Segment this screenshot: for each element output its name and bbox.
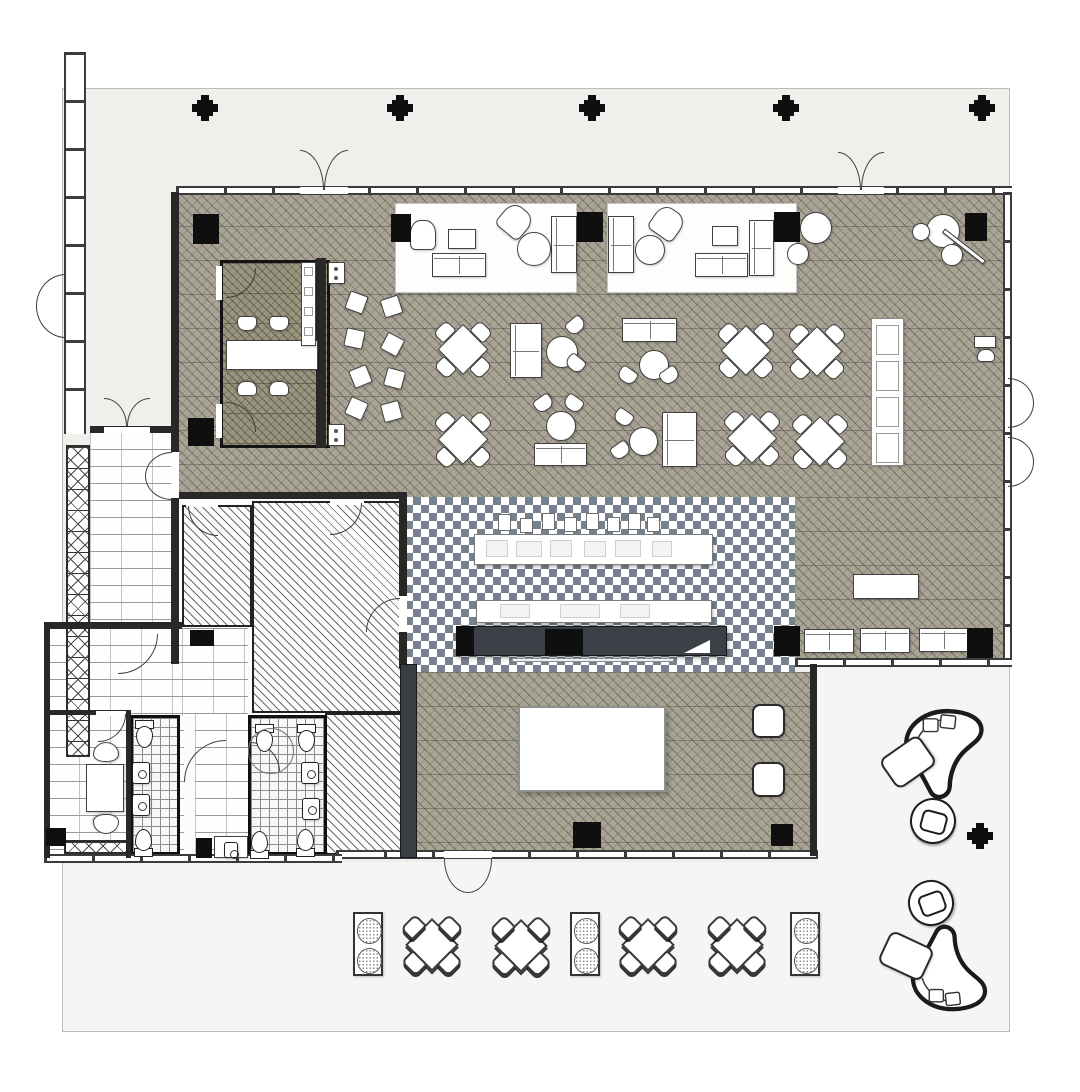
display-shelf xyxy=(871,318,904,466)
door-opening xyxy=(171,452,179,498)
cushion-seam xyxy=(885,631,886,650)
structural-column xyxy=(967,628,993,658)
booth-bench xyxy=(510,323,542,378)
toilet xyxy=(134,720,154,747)
bar-mid-block xyxy=(545,629,583,655)
structural-column xyxy=(771,824,793,846)
washbasin xyxy=(302,798,320,820)
structural-column xyxy=(46,828,66,846)
door-swing xyxy=(1008,462,1034,487)
bar-bottle xyxy=(647,517,660,532)
structural-column xyxy=(193,214,219,244)
bar-equipment xyxy=(584,541,606,557)
lobby-west-wall xyxy=(44,622,50,858)
window-bench xyxy=(919,628,968,652)
cushion-seam xyxy=(459,256,460,274)
window-bench xyxy=(804,629,854,653)
communal-table xyxy=(853,574,919,599)
bar-bottle xyxy=(628,513,641,530)
plant xyxy=(794,948,819,974)
lounge-sofa xyxy=(551,216,577,273)
toilet-bowl xyxy=(251,831,268,853)
coffee-table xyxy=(517,232,551,266)
door-swing xyxy=(1008,437,1034,462)
cushion-seam xyxy=(752,248,771,249)
door-opening xyxy=(216,404,222,438)
av-cabinet xyxy=(328,424,345,446)
display-cell xyxy=(876,433,899,463)
display-cell xyxy=(876,397,899,427)
bar-bottle xyxy=(542,513,555,530)
standing-table xyxy=(912,223,930,241)
door-opening xyxy=(399,596,407,632)
cushion-seam xyxy=(554,245,574,246)
faucet xyxy=(138,802,147,811)
lounge-armchair xyxy=(410,220,436,250)
toilet xyxy=(296,830,316,857)
structural-column xyxy=(196,838,212,858)
bar-bottle xyxy=(498,514,511,531)
toilet-bowl xyxy=(136,726,153,748)
window-bench xyxy=(860,628,910,653)
marker-arm xyxy=(778,100,794,116)
planter-box xyxy=(570,912,600,976)
standing-table xyxy=(800,212,832,244)
knob xyxy=(334,267,338,271)
stage-west-wall xyxy=(400,664,417,858)
bar-footrest xyxy=(512,658,674,662)
floor-plan-canvas xyxy=(0,0,1080,1092)
door-swing xyxy=(36,274,66,306)
hall-west-wall xyxy=(171,192,179,438)
display-cell xyxy=(876,361,899,391)
office-chair xyxy=(93,742,119,762)
structural-column xyxy=(188,418,214,446)
kitchen-leg xyxy=(325,713,405,855)
marker-arm xyxy=(584,100,600,116)
booth-bench xyxy=(662,412,697,467)
bar-equipment xyxy=(500,604,530,618)
av-cabinet xyxy=(328,262,345,284)
low-table xyxy=(752,762,785,797)
cushion-seam xyxy=(513,351,539,352)
display-cell xyxy=(876,325,899,355)
dining-table-round xyxy=(546,411,576,441)
cushion-seam xyxy=(561,446,562,463)
structural-column xyxy=(391,214,411,242)
bar-equipment xyxy=(620,604,650,618)
accessible-turning-circle xyxy=(248,728,294,774)
seat xyxy=(916,889,948,919)
meeting-chair xyxy=(269,316,289,331)
structural-column xyxy=(190,630,214,646)
bar-equipment xyxy=(560,604,600,618)
column-grid-marker xyxy=(192,95,218,121)
sideboard-console xyxy=(301,262,316,346)
door-swing xyxy=(1008,403,1034,428)
southeast-window-wall xyxy=(795,658,1012,667)
bench-strip xyxy=(64,840,128,854)
plant xyxy=(794,918,819,944)
door-swing xyxy=(36,306,66,338)
mop-sink xyxy=(224,842,238,858)
marker-arm xyxy=(972,828,988,844)
lounge-sofa xyxy=(432,253,486,277)
stage-east-wall xyxy=(810,664,817,856)
toilet-bowl xyxy=(135,829,152,851)
marker-arm xyxy=(392,100,408,116)
side-table xyxy=(712,226,738,246)
kitchen-north-wall xyxy=(176,492,406,499)
side-table xyxy=(974,336,996,348)
faucet xyxy=(138,770,147,779)
meeting-chair xyxy=(237,316,257,331)
cushion-seam xyxy=(650,321,651,339)
knob xyxy=(334,429,338,433)
structural-column xyxy=(573,822,601,848)
standing-table xyxy=(941,244,963,266)
cushion-seam xyxy=(944,631,945,649)
faucet xyxy=(307,770,316,779)
east-window-wall xyxy=(1003,192,1012,664)
planter-box xyxy=(790,912,820,976)
toilet-bowl xyxy=(297,829,314,851)
cushion-seam xyxy=(829,632,830,650)
bar-equipment xyxy=(652,541,672,557)
low-table xyxy=(752,704,785,738)
plant xyxy=(357,918,382,944)
column-grid-marker xyxy=(969,95,995,121)
door-opening xyxy=(444,851,492,858)
column-grid-marker xyxy=(579,95,605,121)
washbasin xyxy=(301,762,319,784)
lounge-sofa xyxy=(608,216,634,273)
bar-equipment xyxy=(615,540,641,557)
faucet xyxy=(308,806,317,815)
side-table xyxy=(448,229,476,249)
bar-end-block xyxy=(456,626,474,656)
plant xyxy=(574,948,599,974)
west-exterior-window-wall xyxy=(64,52,86,434)
marker-arm xyxy=(974,100,990,116)
office-east-wall xyxy=(126,710,131,858)
cushion-seam xyxy=(665,440,694,441)
planter-box xyxy=(353,912,383,976)
door-opening xyxy=(216,266,222,300)
stage-platform xyxy=(518,706,666,792)
column-grid-marker xyxy=(967,823,993,849)
bar-bottle xyxy=(607,517,620,532)
chair xyxy=(977,349,995,362)
toilet xyxy=(250,832,270,859)
booth-bench xyxy=(534,443,587,466)
marker-arm xyxy=(197,100,213,116)
lounge-sofa xyxy=(749,220,774,276)
structural-column xyxy=(965,213,987,241)
bar-equipment xyxy=(486,540,508,557)
standing-table xyxy=(787,243,809,265)
meeting-chair xyxy=(237,381,257,396)
booth-bench xyxy=(622,318,677,342)
bar-ramp xyxy=(684,640,710,653)
knob xyxy=(334,438,338,442)
cushion-seam xyxy=(722,256,723,274)
structural-column xyxy=(774,626,800,656)
shelf xyxy=(304,287,313,296)
column-grid-marker xyxy=(387,95,413,121)
door-opening xyxy=(104,427,150,433)
lobby-north-wall xyxy=(44,622,182,629)
pouf-stool xyxy=(343,327,366,350)
coffee-table xyxy=(635,235,665,265)
bar-equipment xyxy=(550,540,572,557)
office-table xyxy=(86,764,124,812)
toilet xyxy=(134,830,154,857)
faucet xyxy=(230,850,239,859)
lounge-sofa xyxy=(695,253,748,277)
structural-column xyxy=(577,212,603,242)
structural-column xyxy=(774,212,800,242)
bar-bottle xyxy=(520,518,533,533)
knob xyxy=(334,276,338,280)
seat xyxy=(918,808,949,836)
cushion-seam xyxy=(611,245,631,246)
bar-bottle xyxy=(564,517,577,532)
bar-bottle xyxy=(586,513,599,530)
door-swing xyxy=(1008,378,1034,403)
plant xyxy=(357,948,382,974)
toilet xyxy=(296,724,316,751)
plant xyxy=(574,918,599,944)
bar-equipment xyxy=(516,541,542,557)
dining-table-round xyxy=(629,427,658,456)
shelf xyxy=(304,267,313,276)
shelf xyxy=(304,327,313,336)
toilet-bowl xyxy=(298,730,315,752)
kitchen-east-wall xyxy=(399,492,407,668)
washbasin xyxy=(132,762,150,784)
washbasin xyxy=(132,794,150,816)
shelf xyxy=(304,307,313,316)
column-grid-marker xyxy=(773,95,799,121)
meeting-chair xyxy=(269,381,289,396)
